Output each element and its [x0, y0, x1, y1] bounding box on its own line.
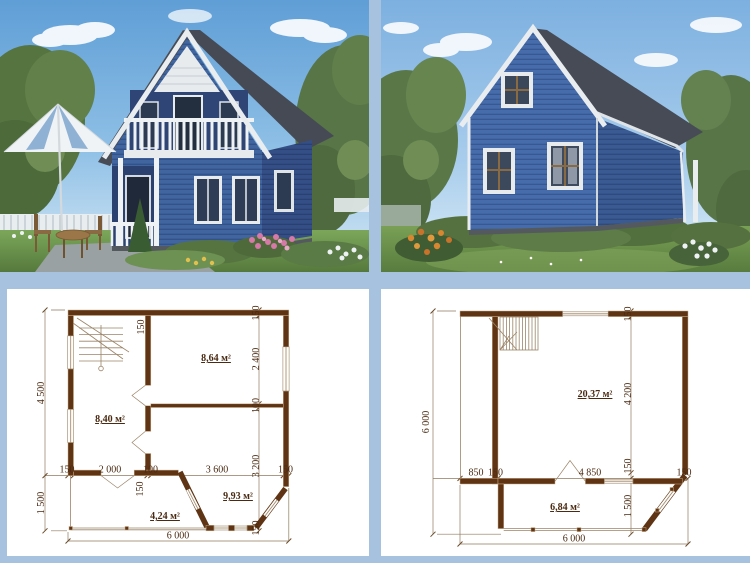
dimension-lines	[43, 308, 292, 544]
dim-mid-0: 850	[469, 468, 484, 479]
floor-plan-first-floor: 4 500 1 500 6 000 150 2 000 100 3 600 15…	[7, 289, 369, 556]
dim-mid-1: 2 000	[99, 465, 122, 476]
distant-fence	[381, 205, 421, 227]
room-area-left: 8,40 м²	[95, 414, 125, 425]
photo-house-rear-view	[381, 0, 750, 272]
dim-wall-porch: 150	[135, 482, 146, 497]
porch-column	[693, 160, 698, 222]
room-area-main: 20,37 м²	[578, 389, 613, 400]
second-floor-plan-drawing: 6 000 6 000 850 150 4 850 150 150 4 200 …	[381, 289, 750, 556]
dim-left: 6 000	[421, 411, 432, 434]
window-left	[483, 148, 515, 194]
room-area-bottom-right: 9,93 м²	[223, 491, 253, 502]
side-window-glass	[277, 173, 291, 209]
plan-labels: 6 000 6 000 850 150 4 850 150 150 4 200 …	[421, 307, 692, 545]
dim-mid-3: 150	[677, 468, 692, 479]
dim-right-3: 1 500	[623, 495, 634, 518]
dim-mid-4: 150	[278, 465, 293, 476]
balcony-floor	[124, 150, 254, 158]
dim-right-0: 150	[623, 307, 634, 322]
dim-right-2: 150	[623, 459, 634, 474]
dim-right-1: 4 200	[623, 383, 634, 406]
walls	[460, 311, 688, 530]
dim-mid-2: 100	[143, 465, 158, 476]
porch-post-right	[154, 158, 159, 246]
balcony-rail	[124, 118, 254, 122]
plan-labels: 4 500 1 500 6 000 150 2 000 100 3 600 15…	[36, 306, 293, 542]
room-area-top-right: 8,64 м²	[201, 353, 231, 364]
room-area-veranda: 6,84 м²	[550, 502, 580, 513]
photo-house-front-view	[0, 0, 369, 272]
dim-mid-2: 4 850	[579, 468, 602, 479]
dim-left-lower: 1 500	[36, 492, 47, 515]
composite-house-project-sheet: 4 500 1 500 6 000 150 2 000 100 3 600 15…	[0, 0, 750, 563]
dim-right-2: 100	[251, 398, 262, 413]
dim-mid-0: 150	[60, 465, 75, 476]
dim-right-1: 2 400	[251, 348, 262, 371]
floor-plan-second-floor: 6 000 6 000 850 150 4 850 150 150 4 200 …	[381, 289, 750, 556]
dim-left-upper: 4 500	[36, 382, 47, 405]
dim-bottom: 6 000	[167, 531, 190, 542]
dim-right-3: 3 200	[251, 455, 262, 478]
dim-mid-3: 3 600	[206, 465, 229, 476]
dim-right-4: 150	[251, 521, 262, 536]
dim-right-0: 150	[251, 306, 262, 321]
first-floor-plan-drawing: 4 500 1 500 6 000 150 2 000 100 3 600 15…	[7, 289, 369, 556]
window-right	[547, 142, 583, 190]
rear-view-illustration	[381, 0, 750, 272]
room-area-porch: 4,24 м²	[150, 511, 180, 522]
dim-bottom: 6 000	[563, 534, 586, 545]
gable-window	[501, 72, 533, 108]
dim-wall-top: 150	[136, 320, 147, 335]
stairs-icon	[73, 318, 129, 371]
front-view-illustration	[0, 0, 369, 272]
dim-mid-1: 150	[488, 468, 503, 479]
